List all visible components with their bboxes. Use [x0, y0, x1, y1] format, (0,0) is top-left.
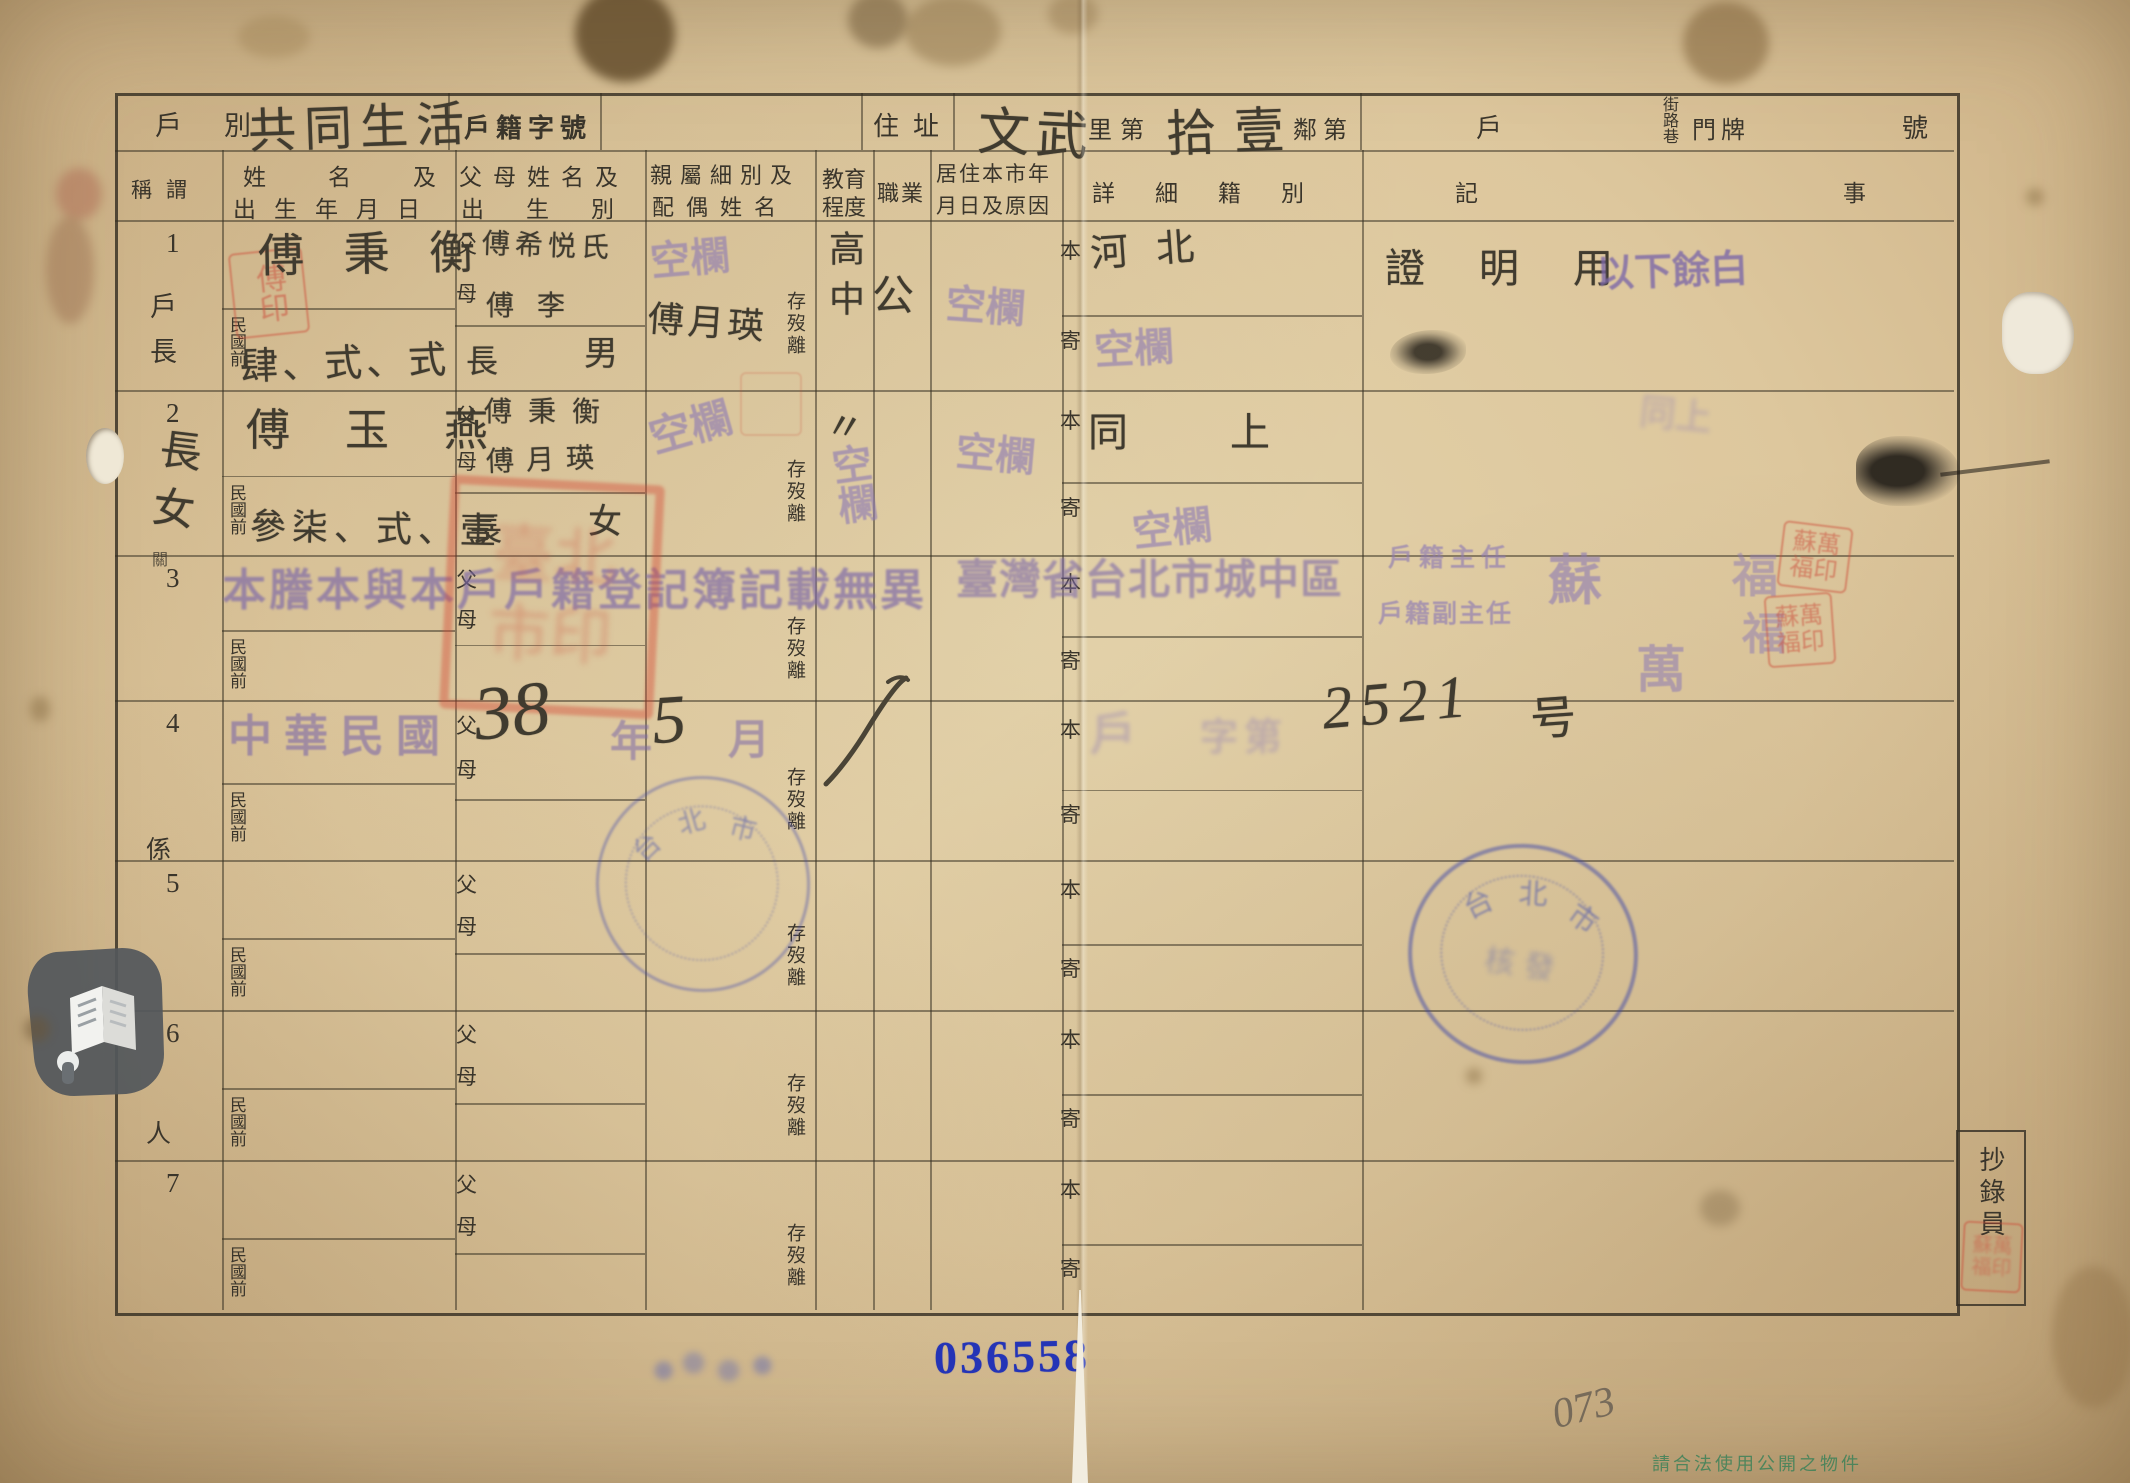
- paper-hole: [86, 428, 124, 484]
- margin-char-guan: 關: [152, 546, 168, 570]
- hand-month-5: 5: [649, 679, 688, 760]
- stain: [46, 216, 94, 324]
- register-number-label: 戶籍字號: [464, 108, 592, 145]
- li-di-label: 里第: [1088, 110, 1152, 145]
- row1-occupation: 公: [872, 262, 914, 323]
- su-wanfu-seal-1-text: 蘇萬福印: [1786, 528, 1844, 586]
- door-plate-label: 門牌: [1692, 110, 1750, 145]
- address-value-lin: 拾壹: [1165, 90, 1303, 167]
- row1-mother: 傅 李: [486, 284, 573, 324]
- col-origin: 詳細籍別: [1092, 174, 1344, 208]
- copyist-red-seal: 蘇萬福印: [1960, 1220, 2024, 1293]
- lin-di-label: 鄰第: [1293, 110, 1353, 145]
- row1-spouse: 傅月瑛: [646, 290, 769, 350]
- household-register-document: 1民國前父母存歿離本寄2民國前父母存歿離本寄3民國前父母存歿離本寄4民國前父母存…: [0, 0, 2130, 1483]
- row1-red-fragment-seal: [740, 372, 802, 436]
- stain: [24, 1016, 50, 1042]
- hu-label: 戶: [1476, 108, 1502, 145]
- signer-name-wan: 萬: [1636, 630, 1686, 702]
- col-residence-1: 居住本市年: [936, 158, 1051, 188]
- stain: [1700, 1190, 1740, 1226]
- stain: [2026, 188, 2044, 206]
- large-red-office-seal-text: 臺北市印: [478, 513, 626, 680]
- document-serial-number: 036558: [934, 1329, 1091, 1385]
- blank-column-stamp: 空欄: [954, 419, 1039, 484]
- row1-education: 高中: [818, 230, 870, 330]
- hao-label: 號: [1902, 108, 1928, 145]
- minguo-date-stamp: 中華民國: [228, 700, 452, 764]
- year-label-stamp: 年: [610, 708, 652, 769]
- row1-birthorder-1: 長: [466, 336, 498, 382]
- col-relation-2: 配偶姓名: [652, 190, 788, 222]
- hand-year-38: 38: [470, 664, 555, 758]
- month-label-stamp: 月: [728, 706, 770, 767]
- blank-column-stamp: 空欄: [817, 440, 886, 527]
- stain: [2052, 1266, 2130, 1408]
- round-right-char: 北: [1518, 870, 1549, 913]
- street-lane-label: 街路巷: [1660, 96, 1677, 144]
- hand-day-stroke: [818, 672, 914, 788]
- stain: [1466, 1068, 1482, 1084]
- address-label: 住址: [873, 106, 953, 143]
- row1-name: 傅 秉 衡: [257, 216, 489, 286]
- hu-char-ghost-stamp: 戶: [1090, 698, 1136, 764]
- row2-origin: 同 上: [1088, 400, 1316, 458]
- col-notes-2: 事: [1843, 174, 1866, 208]
- district-office-stamp: 臺灣省台北市城中區: [956, 546, 1343, 607]
- su-wanfu-seal-1: 蘇萬福印: [1776, 520, 1854, 594]
- su-wanfu-seal-2-text: 蘇萬福印: [1772, 602, 1828, 658]
- signer-name-su: 蘇: [1548, 536, 1602, 615]
- col-parents-2: 出生別: [461, 190, 656, 224]
- zi-di-ghost-stamp: 字第: [1200, 706, 1288, 761]
- rest-blank-stamp: 以下餘白: [1595, 237, 1749, 297]
- fold-crease: [1076, 0, 1088, 1483]
- blank-column-stamp: 空欄: [944, 271, 1028, 334]
- col-residence-2: 月日及原因: [936, 190, 1051, 220]
- ditto-ghost-stamp: 同上: [1637, 382, 1714, 441]
- stain: [30, 696, 50, 722]
- hand-hao-char: 号: [1528, 680, 1578, 749]
- row2-name: 傅 玉 燕: [246, 394, 510, 458]
- row1-title: 戶長: [142, 292, 181, 382]
- col-education-2: 程度: [822, 190, 866, 222]
- stain: [56, 168, 102, 220]
- stain: [1683, 2, 1769, 84]
- margin-char-xi: 係: [146, 830, 171, 866]
- row1-father: 傅希悦氏: [481, 222, 614, 267]
- col-relation-1: 親屬細別及: [650, 158, 800, 190]
- registrar-chief-stamp: 戶籍主任: [1388, 538, 1512, 574]
- household-type-value: 共同生活: [247, 84, 473, 162]
- row2-father: 傅秉衡: [484, 390, 616, 430]
- usage-watermark-text: 請合法使用公開之物件: [1652, 1450, 1862, 1476]
- ink-blot: [1856, 436, 1960, 506]
- row1-birthorder-2: 男: [584, 326, 618, 375]
- registrar-deputy-stamp: 戶籍副主任: [1378, 594, 1513, 630]
- col-title: 稱謂: [131, 174, 201, 204]
- faint-blue-stamp: [648, 1342, 778, 1394]
- hand-serial-2521: 2521: [1319, 662, 1476, 744]
- su-wanfu-seal-2: 蘇萬福印: [1764, 592, 1837, 669]
- row2-mother: 傅月瑛: [485, 436, 606, 480]
- blank-column-stamp: 空欄: [648, 223, 733, 288]
- row1-birthdate: 肆、式、式: [239, 328, 451, 390]
- col-notes-1: 記: [1455, 174, 1478, 208]
- col-occupation: 職業: [877, 176, 925, 208]
- paper-tear-right: [2002, 292, 2074, 374]
- stain: [238, 16, 310, 58]
- margin-char-ren: 人: [146, 1114, 171, 1150]
- copyist-red-seal-text: 蘇萬福印: [1969, 1234, 2015, 1280]
- col-parents-1: 父母姓名及: [459, 158, 629, 192]
- row1-origin: 河北: [1088, 213, 1224, 277]
- blank-column-stamp: 空欄: [1093, 314, 1176, 376]
